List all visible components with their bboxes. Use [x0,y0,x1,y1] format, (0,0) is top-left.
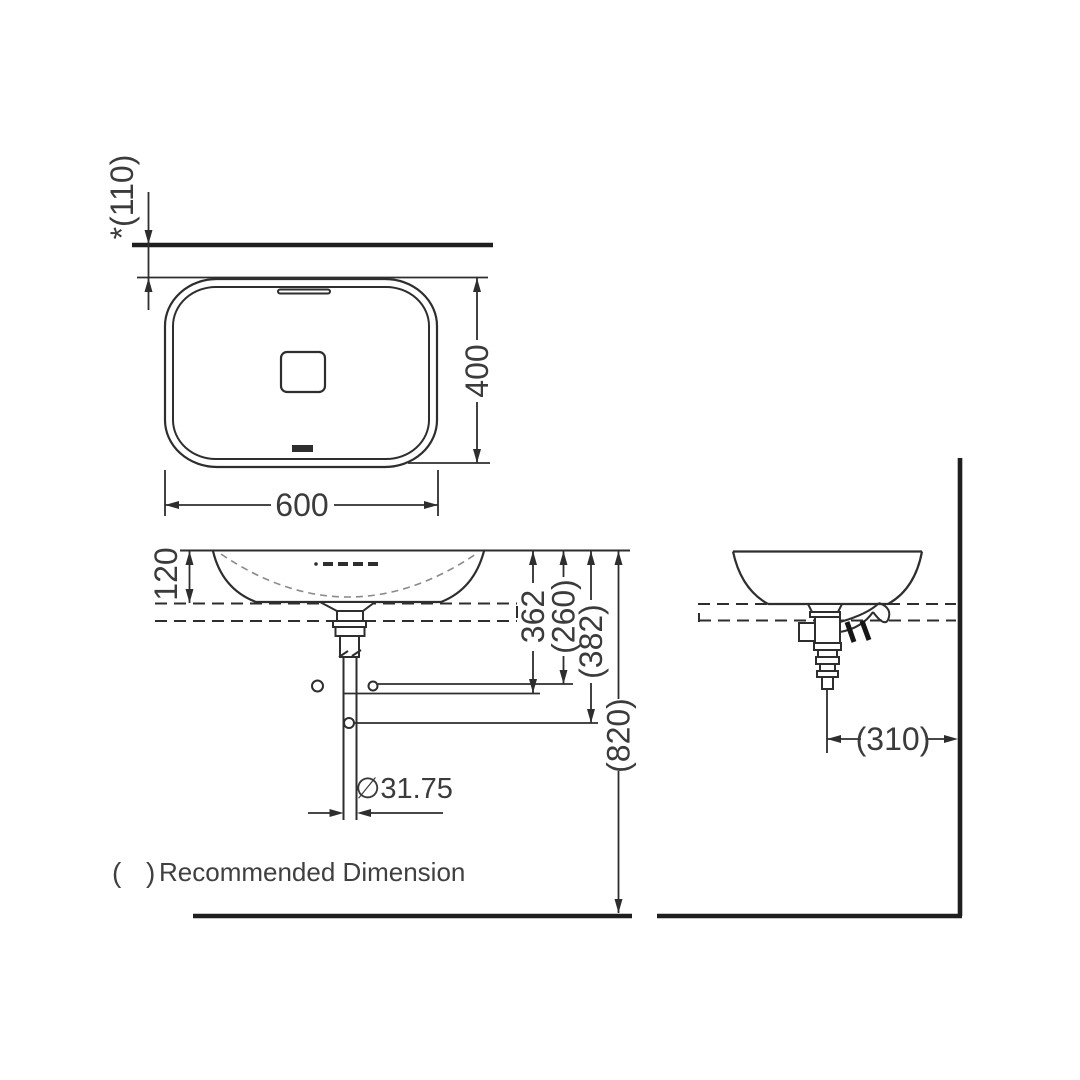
overflow-hole-dot [314,562,318,566]
tee-body [815,617,840,643]
dim-arrow [560,670,568,684]
bowl-profile-side [733,552,922,605]
dim-label-drain-to-wall: (310) [856,721,931,757]
outlet-stub [799,623,815,641]
barb-ring [816,657,839,664]
legend: ( ) Recommended Dimension [112,857,465,888]
dim-arrow [529,679,537,693]
dim-arrow [473,449,481,463]
legend-paren-open: ( [112,857,122,888]
bowl-right-edge [441,551,484,602]
dim-drain-to-wall-310: (310) [827,721,958,757]
bowl-inner-dashed [221,554,476,597]
barb-neck [820,664,835,671]
legend-paren-close: ) [146,857,155,888]
dim-arrow [186,551,194,565]
dim-arrow [186,589,194,603]
drain-square [281,352,325,392]
dim-arrow [615,899,623,913]
dim-label-depth: 400 [459,344,495,397]
dim-width-600: 600 [165,470,438,523]
dim-arrow [145,230,153,244]
dim-label-wall-offset: *(110) [104,155,140,240]
dim-arrow [827,735,841,743]
dim-arrow [944,735,958,743]
dim-label-width: 600 [275,487,328,523]
drain-ring [336,627,365,636]
overflow-hose-inner [840,612,873,632]
dim-pipe-diameter: ∅31.75 [308,773,453,817]
sink-inner-rim [173,287,429,459]
sink-outer-rim [165,279,437,467]
dim-bowl-height-120: 120 [148,547,193,603]
overflow-slot-front [292,445,313,452]
bowl-left-edge [213,551,256,602]
top-view: *(110) 400 600 [104,155,495,524]
side-view: (310) [657,458,962,916]
drain-flange [808,604,842,612]
tail-stub [822,677,833,689]
mounting-hole [344,718,354,728]
dim-arrow [145,278,153,292]
installation-drawing-page: *(110) 400 600 [0,0,1080,1080]
mounting-hole [312,681,323,692]
overflow-slot-back [278,290,330,294]
dim-382: (382) [573,551,609,723]
hose-clamp [862,621,869,640]
dim-arrow [424,501,438,509]
dim-depth-400: 400 [408,278,495,463]
legend-label: Recommended Dimension [159,857,465,887]
drain-flange [320,602,375,611]
dim-label-pipe-diameter: ∅31.75 [355,773,453,805]
hose-clamp [847,622,854,642]
mounting-hole [369,682,378,691]
dim-label-bowl-height: 120 [148,547,184,600]
bowl-profile-front [213,551,484,602]
dim-arrow [587,709,595,723]
dim-arrow [357,809,371,817]
dim-arrow [165,501,179,509]
dim-arrow [473,278,481,292]
sink-top-outline [165,279,437,467]
dim-arrow [560,551,568,565]
bowl-left-edge [733,552,768,605]
drain-body [337,611,363,621]
reducer [818,650,837,657]
dim-arrow [529,551,537,565]
dim-label-820: (820) [601,698,637,773]
dim-arrow [587,551,595,565]
dim-label-382: (382) [573,604,609,679]
technical-drawing: *(110) 400 600 [0,0,1080,1080]
dim-arrow [615,551,623,565]
dim-arrow [330,809,344,817]
locknut [814,643,841,650]
bowl-right-edge [888,552,922,605]
dim-wall-offset-110: *(110) [104,155,152,310]
